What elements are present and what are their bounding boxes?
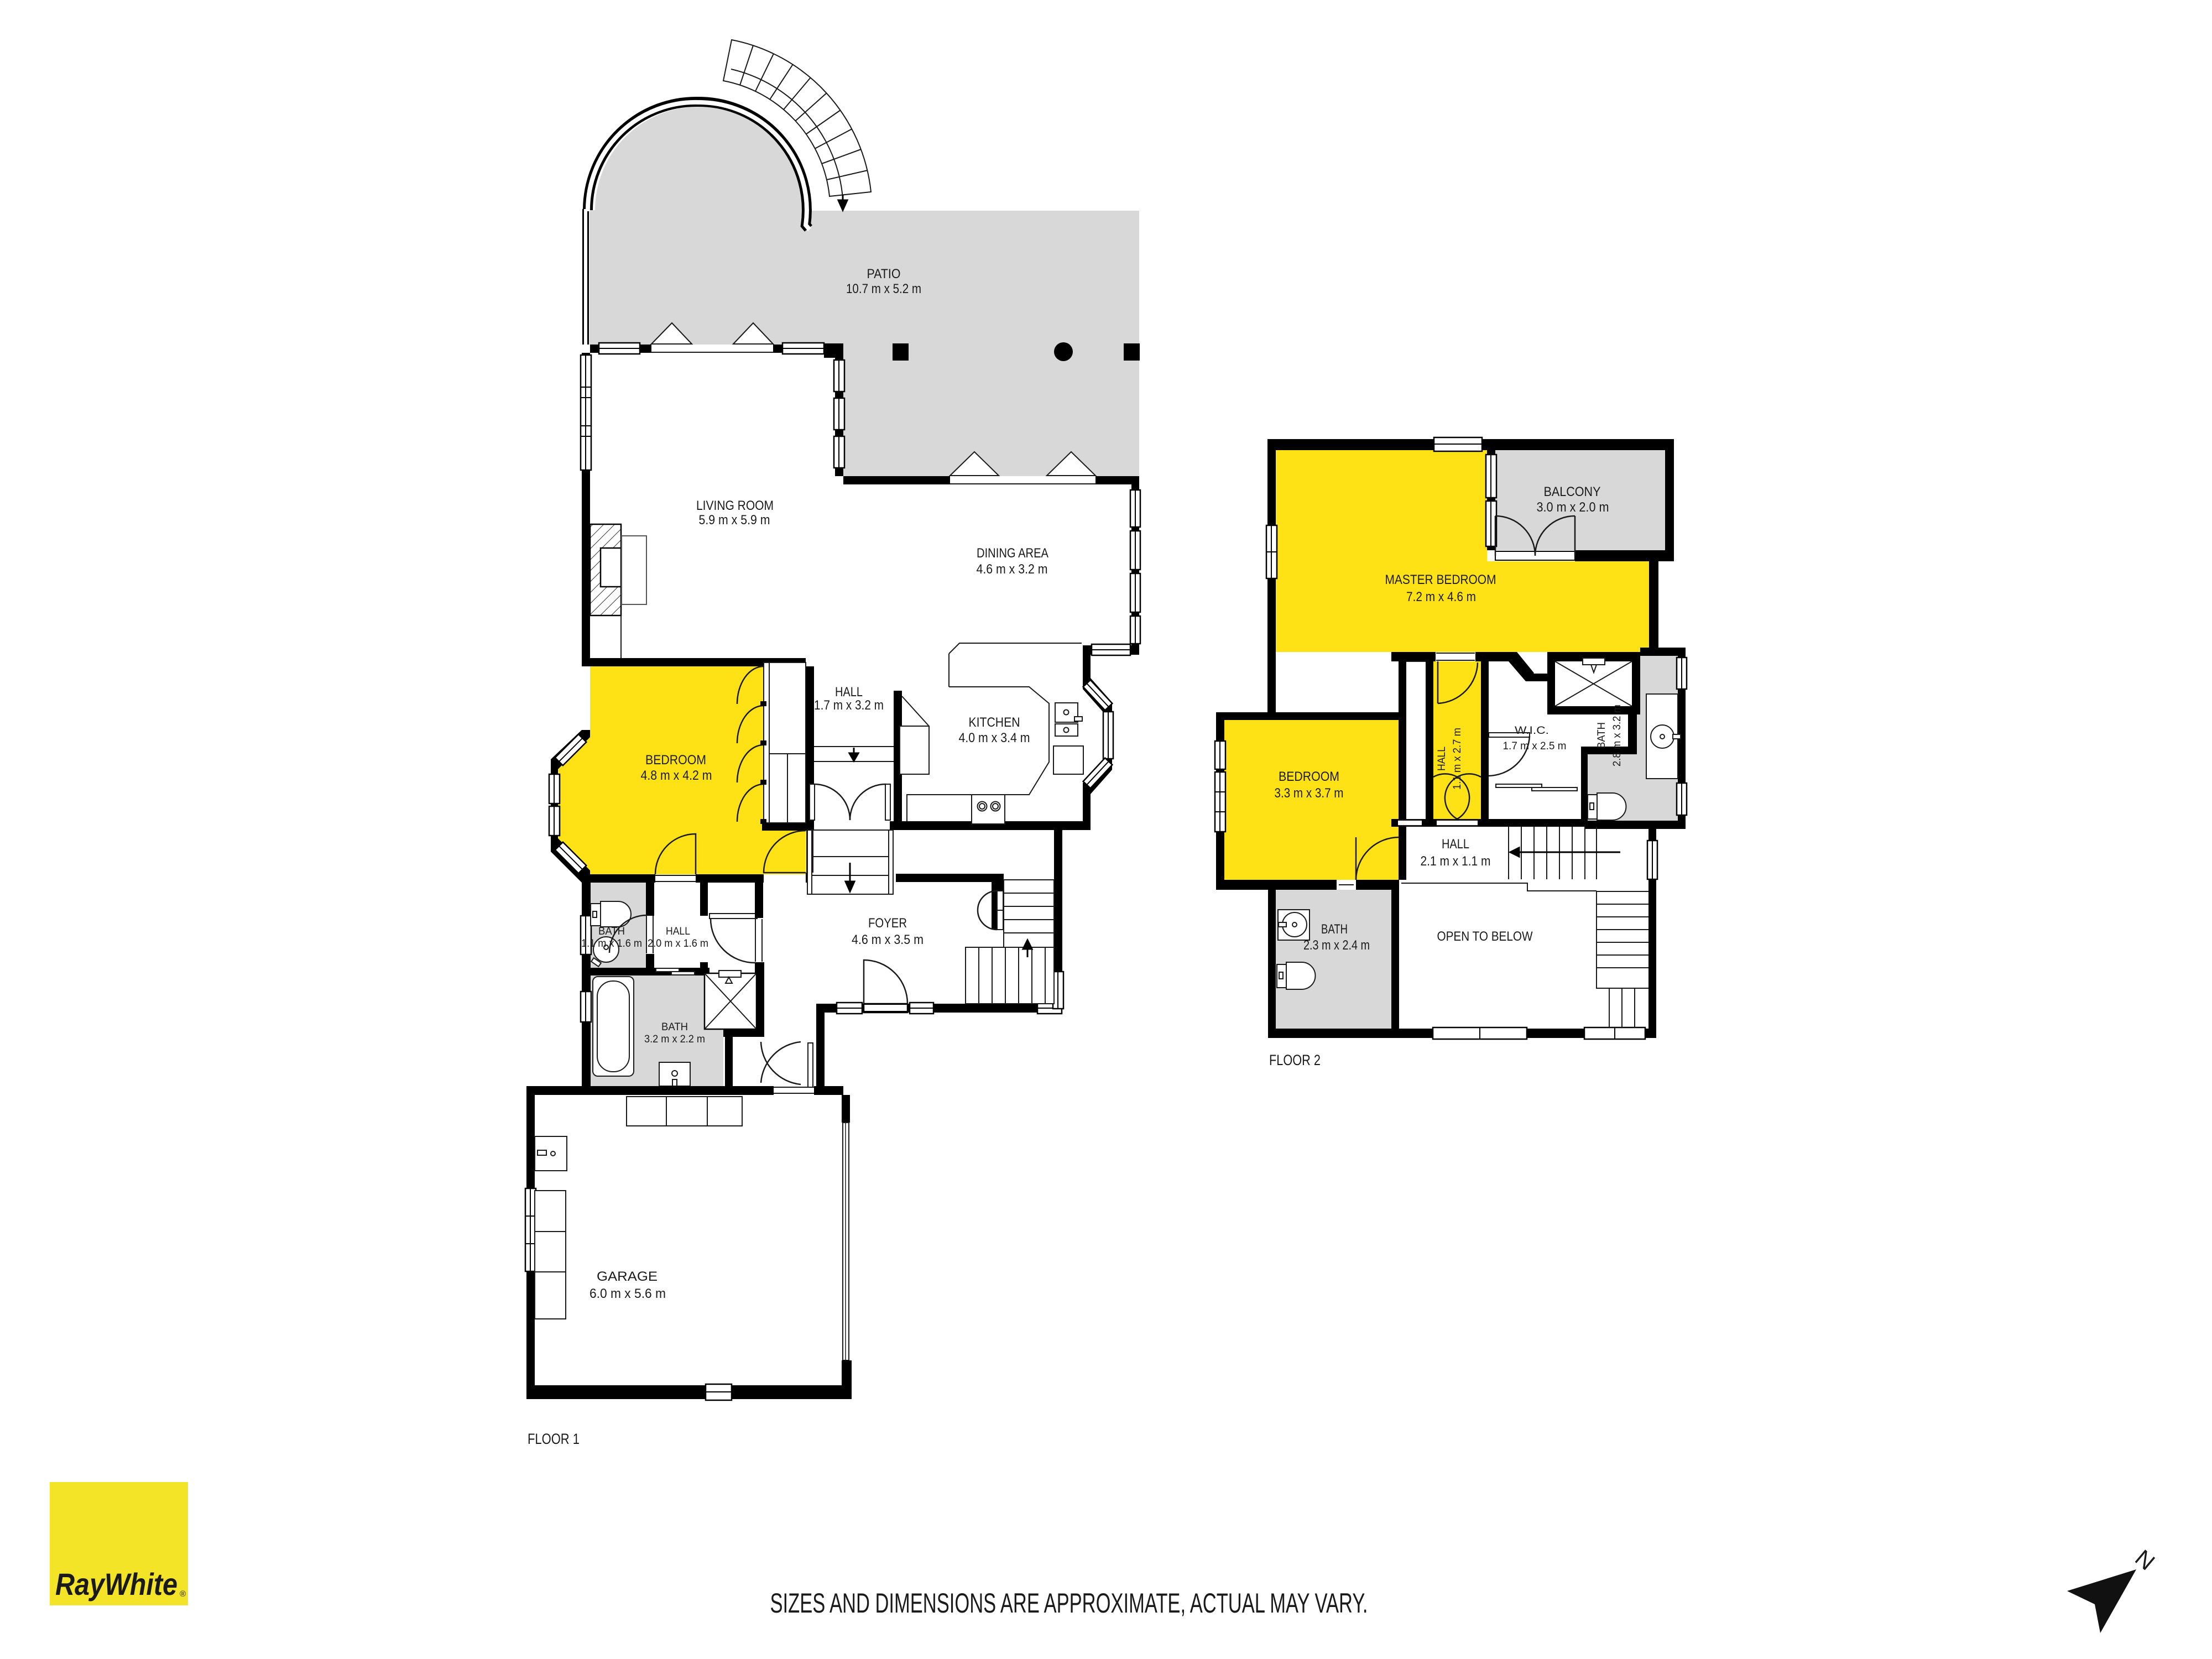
svg-text:1.1 m x 1.6 m: 1.1 m x 1.6 m [581,938,642,950]
svg-text:3.2 m x 2.2 m: 3.2 m x 2.2 m [644,1034,705,1045]
svg-text:LIVING ROOM: LIVING ROOM [696,498,774,513]
svg-text:BATH: BATH [1321,922,1348,937]
svg-text:10.7 m x 5.2 m: 10.7 m x 5.2 m [846,281,921,296]
svg-text:HALL: HALL [1436,747,1448,771]
svg-text:BEDROOM: BEDROOM [645,753,706,768]
svg-text:2.1 m x 1.1 m: 2.1 m x 1.1 m [1421,854,1491,869]
svg-text:3.3 m x 3.7 m: 3.3 m x 3.7 m [1275,786,1344,801]
svg-text:HALL: HALL [1442,837,1469,852]
svg-text:KITCHEN: KITCHEN [969,715,1020,730]
svg-text:BATH: BATH [598,926,625,937]
svg-text:W.I.C.: W.I.C. [1515,725,1549,737]
svg-text:SIZES AND DIMENSIONS ARE APPRO: SIZES AND DIMENSIONS ARE APPROXIMATE, AC… [770,1588,1368,1619]
svg-text:MASTER BEDROOM: MASTER BEDROOM [1385,572,1496,587]
svg-text:RayWhite: RayWhite [55,1567,178,1601]
svg-text:FOYER: FOYER [868,916,907,931]
svg-text:2.8 m x 3.2 m: 2.8 m x 3.2 m [1611,705,1623,766]
svg-text:2.0 m x 1.6 m: 2.0 m x 1.6 m [648,938,708,950]
svg-text:GARAGE: GARAGE [597,1269,658,1284]
svg-text:4.0 m x 3.4 m: 4.0 m x 3.4 m [959,731,1030,745]
svg-text:HALL: HALL [835,685,863,700]
svg-text:DINING AREA: DINING AREA [977,546,1048,561]
svg-text:2.3 m x 2.4 m: 2.3 m x 2.4 m [1303,938,1370,953]
svg-text:7.2 m x 4.6 m: 7.2 m x 4.6 m [1406,589,1476,604]
svg-text:1.7 m x 3.2 m: 1.7 m x 3.2 m [814,698,884,713]
svg-text:®: ® [180,1589,186,1599]
svg-text:BEDROOM: BEDROOM [1279,769,1339,784]
svg-text:FLOOR 1: FLOOR 1 [528,1431,580,1447]
svg-text:FLOOR 2: FLOOR 2 [1269,1052,1321,1068]
svg-text:1.7 m x 2.5 m: 1.7 m x 2.5 m [1503,740,1567,752]
svg-text:BATH: BATH [661,1021,688,1033]
svg-text:5.9 m x 5.9 m: 5.9 m x 5.9 m [699,513,770,528]
svg-text:4.8 m x 4.2 m: 4.8 m x 4.2 m [641,768,712,783]
svg-text:6.0 m x 5.6 m: 6.0 m x 5.6 m [589,1286,666,1301]
svg-text:3.0 m x 2.0 m: 3.0 m x 2.0 m [1537,500,1609,515]
svg-text:HALL: HALL [666,926,690,937]
svg-text:BATH: BATH [1596,722,1608,749]
svg-text:PATIO: PATIO [867,267,901,281]
svg-text:4.6 m x 3.2 m: 4.6 m x 3.2 m [977,562,1048,577]
svg-text:4.6 m x 3.5 m: 4.6 m x 3.5 m [852,932,924,947]
svg-text:1.1 m x 2.7 m: 1.1 m x 2.7 m [1452,728,1463,790]
svg-text:OPEN TO BELOW: OPEN TO BELOW [1437,929,1533,944]
svg-text:BALCONY: BALCONY [1544,484,1601,499]
